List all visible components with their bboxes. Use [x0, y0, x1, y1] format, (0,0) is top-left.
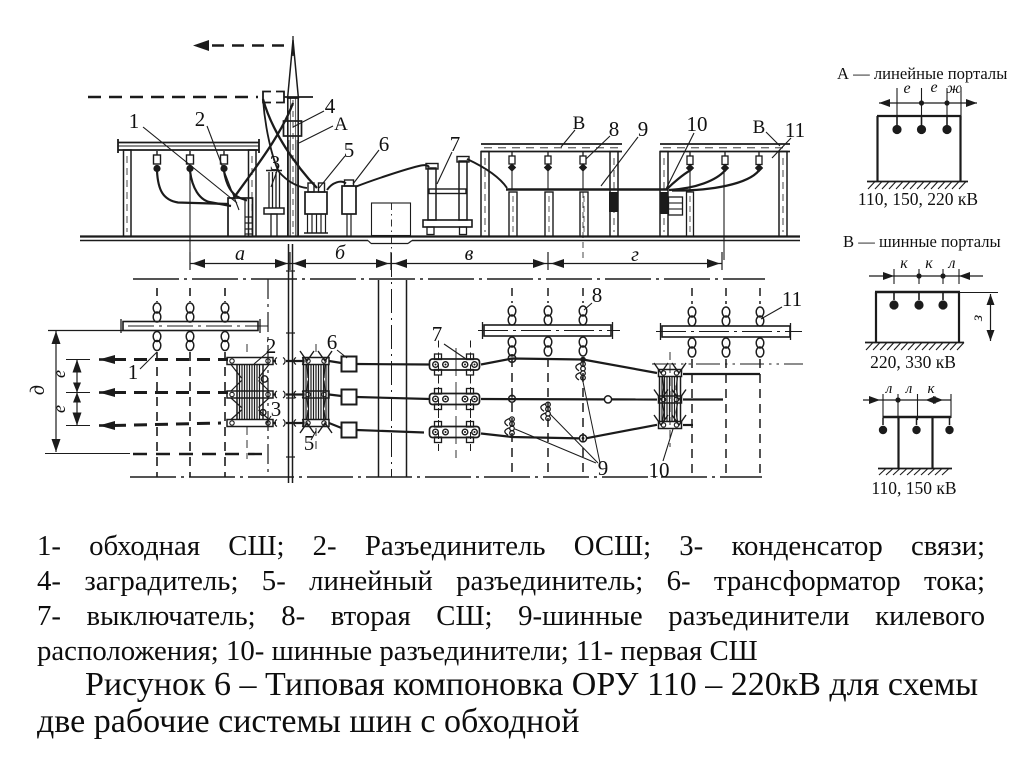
svg-text:11: 11: [785, 118, 805, 142]
svg-text:з: з: [969, 315, 986, 322]
svg-text:2: 2: [195, 107, 206, 131]
svg-text:В: В: [753, 117, 766, 138]
svg-text:11: 11: [782, 287, 802, 311]
svg-text:к: к: [925, 255, 933, 272]
svg-text:1: 1: [128, 360, 139, 384]
svg-text:к: к: [900, 255, 908, 272]
svg-text:г: г: [631, 244, 639, 266]
svg-text:в: в: [465, 243, 474, 265]
svg-text:е: е: [903, 80, 910, 97]
svg-text:10: 10: [649, 458, 670, 482]
svg-text:8: 8: [609, 117, 620, 141]
svg-text:ж: ж: [947, 80, 962, 97]
svg-text:110, 150, 220 кВ: 110, 150, 220 кВ: [858, 189, 978, 209]
svg-text:10: 10: [687, 112, 708, 136]
svg-text:8: 8: [592, 283, 603, 307]
svg-text:7: 7: [432, 322, 443, 346]
svg-text:3: 3: [270, 151, 281, 175]
svg-text:В — шинные порталы: В — шинные порталы: [843, 232, 1001, 251]
svg-text:2: 2: [266, 334, 277, 358]
svg-text:110, 150 кВ: 110, 150 кВ: [871, 478, 956, 498]
svg-text:л: л: [885, 381, 893, 397]
svg-text:6: 6: [327, 330, 338, 354]
svg-text:А: А: [334, 114, 348, 135]
svg-text:е: е: [930, 79, 937, 96]
svg-text:А — линейные порталы: А — линейные порталы: [837, 64, 1007, 83]
svg-text:9: 9: [638, 117, 649, 141]
svg-text:л: л: [905, 381, 913, 397]
svg-text:5: 5: [344, 138, 355, 162]
svg-text:е: е: [49, 405, 69, 413]
svg-text:д: д: [27, 385, 49, 395]
svg-text:л: л: [948, 255, 956, 272]
svg-text:е: е: [49, 370, 69, 378]
svg-text:5: 5: [304, 431, 315, 455]
svg-text:220, 330 кВ: 220, 330 кВ: [870, 352, 956, 372]
svg-text:6: 6: [379, 132, 390, 156]
svg-text:3: 3: [271, 397, 282, 421]
svg-text:к: к: [927, 381, 935, 397]
svg-text:б: б: [335, 242, 346, 264]
svg-text:а: а: [235, 243, 245, 265]
svg-text:1: 1: [129, 109, 140, 133]
